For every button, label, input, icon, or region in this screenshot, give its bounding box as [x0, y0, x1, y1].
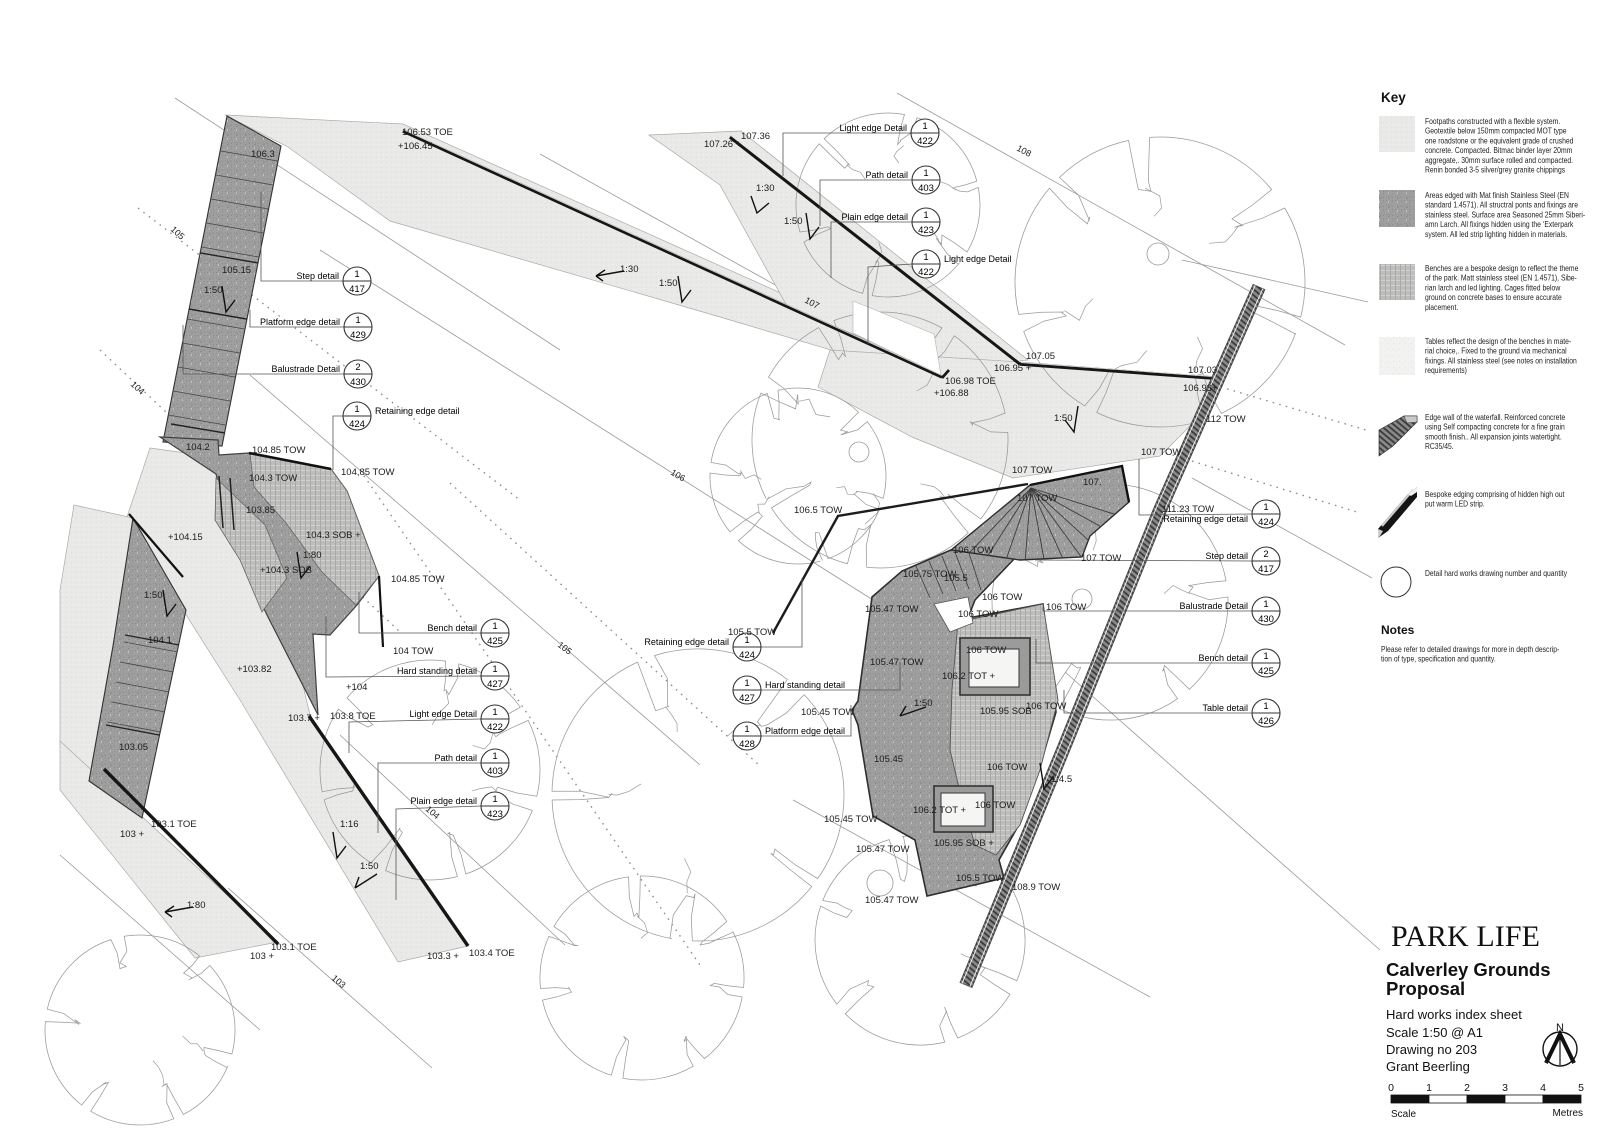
svg-text:2: 2	[1263, 549, 1268, 560]
svg-text:amn Larch. All fixings hidden: amn Larch. All fixings hidden using the …	[1425, 219, 1574, 229]
svg-text:105.5 TOW: 105.5 TOW	[728, 627, 776, 638]
svg-text:105.95 SOB +: 105.95 SOB +	[934, 838, 994, 849]
svg-text:425: 425	[1258, 666, 1274, 677]
svg-text:112 TOW: 112 TOW	[1206, 414, 1246, 425]
svg-text:Table detail: Table detail	[1202, 703, 1248, 713]
svg-text:108.9 TOW: 108.9 TOW	[1012, 882, 1060, 893]
svg-text:424: 424	[739, 650, 755, 661]
svg-text:1:80: 1:80	[187, 900, 206, 911]
svg-text:fixings. All stainless steel (: fixings. All stainless steel (see notes …	[1425, 356, 1577, 366]
svg-text:2: 2	[355, 362, 360, 373]
svg-text:1: 1	[923, 252, 928, 263]
svg-text:PARK LIFE: PARK LIFE	[1391, 920, 1543, 953]
svg-text:1:50: 1:50	[784, 216, 803, 227]
svg-text:Plain edge detail: Plain edge detail	[410, 796, 477, 806]
svg-text:103 +: 103 +	[120, 829, 144, 840]
svg-text:105.47 TOW: 105.47 TOW	[865, 604, 919, 615]
svg-text:Grant Beerling: Grant Beerling	[1386, 1059, 1470, 1074]
svg-text:+104.15: +104.15	[168, 532, 203, 543]
svg-text:107 TOW: 107 TOW	[1081, 553, 1121, 564]
svg-text:Proposal: Proposal	[1386, 978, 1465, 999]
svg-text:105.45 TOW: 105.45 TOW	[801, 707, 855, 718]
svg-text:105.5 TOW: 105.5 TOW	[956, 873, 1004, 884]
svg-text:106 TOW: 106 TOW	[987, 762, 1027, 773]
svg-text:106.95 +: 106.95 +	[994, 363, 1032, 374]
svg-text:standard 1.4571). All structra: standard 1.4571). All structral ponts an…	[1425, 200, 1578, 210]
svg-text:104.3 TOW: 104.3 TOW	[249, 473, 297, 484]
svg-text:106 TOW: 106 TOW	[958, 609, 998, 620]
svg-text:aggregate,. 30mm surface rolle: aggregate,. 30mm surface rolled and comp…	[1425, 155, 1573, 165]
svg-text:103.3 +: 103.3 +	[427, 951, 459, 962]
svg-text:stainless steel. Surface area: stainless steel. Surface area Seasoned 2…	[1425, 210, 1586, 220]
svg-text:104 TOW: 104 TOW	[393, 646, 433, 657]
svg-text:1:16: 1:16	[340, 819, 359, 830]
svg-text:Detail hard works drawing numb: Detail hard works drawing number and qua…	[1425, 568, 1567, 578]
svg-text:107.26 +: 107.26 +	[704, 139, 742, 150]
svg-text:106.53 TOE: 106.53 TOE	[402, 127, 453, 138]
svg-text:Path detail: Path detail	[434, 753, 477, 763]
svg-text:Areas edged with Mat finish St: Areas edged with Mat finish Stainless St…	[1425, 190, 1569, 200]
svg-text:430: 430	[1258, 614, 1274, 625]
svg-text:417: 417	[1258, 564, 1274, 575]
svg-text:Drawing no 203: Drawing no 203	[1386, 1042, 1477, 1057]
svg-text:107 TOW: 107 TOW	[1141, 447, 1181, 458]
svg-text:111.23 TOW: 111.23 TOW	[1162, 504, 1214, 515]
svg-text:Path detail: Path detail	[865, 170, 908, 180]
svg-text:Scale: Scale	[1391, 1109, 1416, 1120]
svg-text:1: 1	[922, 121, 927, 132]
svg-text:1: 1	[1263, 701, 1268, 712]
svg-text:1:4.5: 1:4.5	[1051, 774, 1072, 785]
svg-text:425: 425	[487, 636, 503, 647]
svg-text:106.98 TOE: 106.98 TOE	[945, 376, 996, 387]
svg-text:Balustrade Detail: Balustrade Detail	[1179, 601, 1248, 611]
svg-text:Notes: Notes	[1381, 623, 1415, 637]
svg-text:103 +: 103 +	[250, 951, 274, 962]
svg-text:Footpaths constructed with a f: Footpaths constructed with a flexible sy…	[1425, 116, 1560, 126]
svg-text:1: 1	[354, 269, 359, 280]
svg-text:Scale 1:50 @ A1: Scale 1:50 @ A1	[1386, 1025, 1483, 1040]
svg-text:1: 1	[744, 678, 749, 689]
svg-text:105.5: 105.5	[944, 573, 968, 584]
svg-text:Bench detail: Bench detail	[427, 623, 477, 633]
svg-text:423: 423	[918, 225, 934, 236]
svg-text:Retaining edge detail: Retaining edge detail	[644, 637, 729, 647]
svg-text:of the park. Matt stainless st: of the park. Matt stainless steel (EN 1.…	[1425, 273, 1577, 283]
svg-text:1: 1	[1263, 651, 1268, 662]
svg-text:105.47 TOW: 105.47 TOW	[870, 657, 924, 668]
svg-text:placement.: placement.	[1425, 302, 1458, 312]
svg-text:Bench detail: Bench detail	[1198, 653, 1248, 663]
svg-text:403: 403	[918, 183, 934, 194]
svg-text:rian larch and led lighting. C: rian larch and led lighting. Cages fitte…	[1425, 283, 1561, 293]
svg-text:103.1 TOE: 103.1 TOE	[151, 819, 197, 830]
svg-text:Platform edge detail: Platform edge detail	[260, 317, 340, 327]
svg-text:Calverley Grounds: Calverley Grounds	[1386, 959, 1551, 980]
svg-text:106.5 TOW: 106.5 TOW	[794, 505, 842, 516]
svg-text:106 TOW: 106 TOW	[982, 592, 1022, 603]
svg-text:Light edge Detail: Light edge Detail	[839, 123, 907, 133]
svg-text:424: 424	[1258, 517, 1274, 528]
svg-text:Geotextile below 150mm compact: Geotextile below 150mm compacted MOT typ…	[1425, 126, 1567, 136]
svg-text:427: 427	[487, 679, 503, 690]
svg-text:1:50: 1:50	[659, 278, 678, 289]
svg-text:Retaining edge detail: Retaining edge detail	[1163, 514, 1248, 524]
svg-text:Light edge Detail: Light edge Detail	[409, 709, 477, 719]
svg-text:tion of type, specification an: tion of type, specification and quantity…	[1381, 654, 1496, 664]
svg-text:one roadstone or the equivalen: one roadstone or the equivalent grade of…	[1425, 136, 1573, 146]
svg-text:422: 422	[917, 136, 933, 147]
svg-text:103.05: 103.05	[119, 742, 148, 753]
svg-text:1:30: 1:30	[756, 183, 775, 194]
svg-text:ground on concrete bases to en: ground on concrete bases to ensure accur…	[1425, 292, 1562, 302]
svg-text:426: 426	[1258, 716, 1274, 727]
svg-text:put warm LED strip.: put warm LED strip.	[1425, 499, 1485, 509]
svg-text:+104.3 SOB: +104.3 SOB	[260, 565, 312, 576]
svg-text:+104: +104	[346, 682, 367, 693]
svg-text:Edge wall of the waterfall. Re: Edge wall of the waterfall. Reinforced c…	[1425, 412, 1565, 422]
svg-text:+103.82: +103.82	[237, 664, 272, 675]
svg-text:1: 1	[923, 168, 928, 179]
svg-text:1: 1	[1263, 502, 1268, 513]
svg-text:using Self compacting concrete: using Self compacting concrete for a fin…	[1425, 422, 1565, 432]
svg-text:429: 429	[350, 330, 366, 341]
svg-text:system. All led strip lighting: system. All led strip lighting hidden in…	[1425, 229, 1567, 239]
svg-text:104.85 TOW: 104.85 TOW	[252, 445, 306, 456]
svg-text:Hard standing detail: Hard standing detail	[765, 680, 845, 690]
svg-text:106.2 TOT +: 106.2 TOT +	[942, 671, 996, 682]
svg-text:Tables reflect the design of t: Tables reflect the design of the benches…	[1425, 336, 1572, 346]
svg-text:Light edge Detail: Light edge Detail	[944, 254, 1012, 264]
svg-text:1: 1	[492, 707, 497, 718]
svg-text:104,85 TOW: 104,85 TOW	[341, 467, 395, 478]
svg-text:1: 1	[744, 724, 749, 735]
svg-text:Hard standing detail: Hard standing detail	[397, 666, 477, 676]
svg-text:Benches are a bespoke design t: Benches are a bespoke design to reflect …	[1425, 263, 1578, 273]
svg-text:rial choice,. Fixed to the gro: rial choice,. Fixed to the ground via me…	[1425, 346, 1567, 356]
svg-text:427: 427	[739, 693, 755, 704]
svg-text:105.45: 105.45	[874, 754, 903, 765]
svg-text:0: 0	[1388, 1082, 1394, 1094]
svg-text:Bespoke edging comprising of h: Bespoke edging comprising of hidden high…	[1425, 489, 1565, 499]
svg-text:422: 422	[487, 722, 503, 733]
svg-text:1: 1	[1263, 599, 1268, 610]
svg-text:107.03: 107.03	[1188, 365, 1217, 376]
svg-text:4: 4	[1540, 1082, 1546, 1094]
svg-text:103.1 TOE: 103.1 TOE	[271, 942, 317, 953]
svg-text:417: 417	[349, 284, 365, 295]
svg-text:423: 423	[487, 809, 503, 820]
svg-text:3: 3	[1502, 1082, 1508, 1094]
svg-text:403: 403	[487, 766, 503, 777]
svg-text:Plain edge detail: Plain edge detail	[841, 212, 908, 222]
svg-text:1: 1	[354, 404, 359, 415]
svg-text:107.36: 107.36	[741, 131, 770, 142]
svg-text:1: 1	[355, 315, 360, 326]
svg-text:requirements): requirements)	[1425, 365, 1467, 375]
svg-text:1:50: 1:50	[1054, 413, 1073, 424]
svg-text:104.2: 104.2	[186, 442, 210, 453]
svg-text:103.8 TOE: 103.8 TOE	[330, 711, 376, 722]
svg-text:1: 1	[492, 794, 497, 805]
svg-text:107.: 107.	[1083, 477, 1102, 488]
svg-text:107.05: 107.05	[1026, 351, 1055, 362]
svg-text:smooth finish.. All expansion: smooth finish.. All expansion joints wat…	[1425, 432, 1562, 442]
svg-text:5: 5	[1578, 1082, 1584, 1094]
svg-text:Balustrade Detail: Balustrade Detail	[271, 364, 340, 374]
svg-text:2: 2	[1464, 1082, 1470, 1094]
svg-text:Platform edge detail: Platform edge detail	[765, 726, 845, 736]
svg-text:428: 428	[739, 739, 755, 750]
svg-text:424: 424	[349, 419, 365, 430]
svg-text:1: 1	[492, 664, 497, 675]
svg-text:1:50: 1:50	[204, 285, 223, 296]
svg-text:105.47 TOW: 105.47 TOW	[856, 844, 910, 855]
svg-text:1:80: 1:80	[303, 550, 322, 561]
svg-text:1:50: 1:50	[360, 861, 379, 872]
svg-text:Metres: Metres	[1552, 1108, 1583, 1119]
svg-text:Step detail: Step detail	[1205, 551, 1248, 561]
svg-text:1: 1	[492, 621, 497, 632]
svg-text:104.1: 104.1	[148, 635, 172, 646]
svg-text:Retaining edge detail: Retaining edge detail	[375, 406, 460, 416]
svg-text:422: 422	[918, 267, 934, 278]
svg-text:concrete. Compacted. Bitmac bi: concrete. Compacted. Bitmac binder layer…	[1425, 145, 1572, 155]
svg-text:105.95 SOB: 105.95 SOB	[980, 706, 1032, 717]
svg-text:103.7 +: 103.7 +	[288, 713, 320, 724]
svg-text:1:30: 1:30	[620, 264, 639, 275]
svg-text:106.93+: 106.93+	[1183, 383, 1218, 394]
svg-text:107 TOW: 107 TOW	[1017, 493, 1057, 504]
svg-text:+106.45: +106.45	[398, 141, 433, 152]
svg-text:430: 430	[350, 377, 366, 388]
svg-text:103.85: 103.85	[246, 505, 275, 516]
svg-text:105.45 TOW: 105.45 TOW	[824, 814, 878, 825]
svg-text:Please refer to detailed drawi: Please refer to detailed drawings for mo…	[1381, 644, 1560, 654]
svg-text:104.85 TOW: 104.85 TOW	[391, 574, 445, 585]
svg-text:106 TOW: 106 TOW	[953, 545, 993, 556]
svg-text:105.15: 105.15	[222, 265, 251, 276]
svg-text:Step detail: Step detail	[296, 271, 339, 281]
svg-text:107 TOW: 107 TOW	[1012, 465, 1052, 476]
svg-text:Hard works index sheet: Hard works index sheet	[1386, 1007, 1522, 1022]
svg-text:Renin bonded 3-5 silver/grey g: Renin bonded 3-5 silver/grey granite chi…	[1425, 165, 1565, 175]
svg-text:Key: Key	[1381, 90, 1406, 105]
svg-text:1: 1	[492, 751, 497, 762]
svg-text:103.4 TOE: 103.4 TOE	[469, 948, 515, 959]
svg-text:1: 1	[923, 210, 928, 221]
svg-text:106.3: 106.3	[251, 149, 275, 160]
svg-text:105.47 TOW: 105.47 TOW	[865, 895, 919, 906]
svg-text:104.3 SOB +: 104.3 SOB +	[306, 530, 361, 541]
svg-text:1: 1	[1426, 1082, 1432, 1094]
svg-text:106 TOW: 106 TOW	[975, 800, 1015, 811]
svg-text:+106.88: +106.88	[934, 388, 969, 399]
svg-text:106 TOW: 106 TOW	[1046, 602, 1086, 613]
svg-text:106.2 TOT +: 106.2 TOT +	[913, 805, 967, 816]
svg-text:RC35/45.: RC35/45.	[1425, 441, 1454, 451]
svg-text:106 TOW: 106 TOW	[966, 645, 1006, 656]
svg-text:106 TOW: 106 TOW	[1026, 701, 1066, 712]
svg-text:1:50: 1:50	[144, 590, 163, 601]
